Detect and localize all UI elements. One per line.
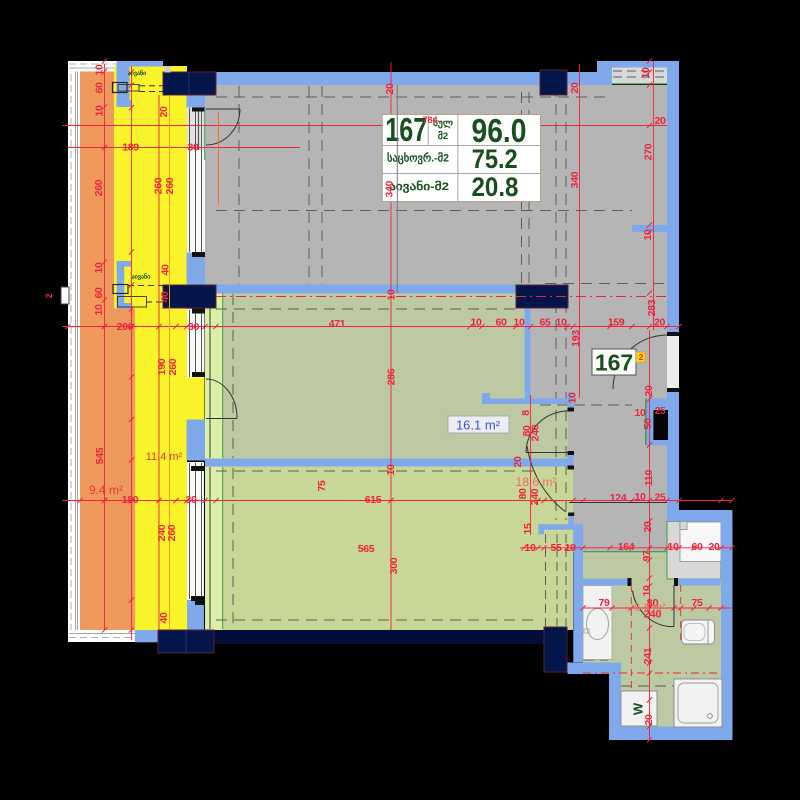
- svg-text:10: 10: [641, 585, 653, 597]
- svg-text:180: 180: [122, 494, 139, 506]
- svg-text:11.4 m²: 11.4 m²: [146, 451, 183, 463]
- svg-text:241: 241: [642, 647, 654, 664]
- svg-text:10: 10: [93, 304, 105, 316]
- svg-text:20: 20: [654, 115, 666, 127]
- svg-text:270: 270: [643, 143, 655, 160]
- svg-text:189: 189: [122, 142, 139, 154]
- svg-text:40: 40: [159, 291, 171, 303]
- svg-text:6.6 m²: 6.6 m²: [634, 602, 666, 614]
- svg-text:167: 167: [385, 111, 427, 148]
- svg-text:მ2: მ2: [438, 130, 448, 142]
- svg-text:565: 565: [358, 543, 375, 555]
- svg-text:30: 30: [188, 321, 200, 333]
- svg-text:25: 25: [654, 492, 666, 504]
- svg-text:60: 60: [93, 287, 105, 299]
- svg-text:18.6 m²: 18.6 m²: [516, 475, 557, 489]
- svg-text:10: 10: [470, 317, 482, 329]
- svg-text:75.2: 75.2: [472, 144, 518, 174]
- svg-text:260: 260: [166, 524, 178, 541]
- svg-text:10: 10: [667, 541, 679, 553]
- svg-text:30: 30: [187, 142, 199, 154]
- svg-text:აივანი: აივანი: [128, 69, 147, 77]
- svg-text:10: 10: [642, 229, 654, 241]
- svg-text:16.1 m²: 16.1 m²: [456, 418, 501, 433]
- svg-text:10: 10: [567, 392, 579, 404]
- svg-text:10: 10: [93, 262, 105, 274]
- svg-text:8: 8: [520, 410, 532, 416]
- svg-text:20: 20: [654, 317, 666, 329]
- svg-text:10: 10: [640, 67, 652, 79]
- svg-text:75: 75: [691, 597, 703, 609]
- svg-text:20: 20: [569, 82, 581, 94]
- svg-text:75: 75: [316, 480, 328, 492]
- svg-text:10: 10: [564, 542, 576, 554]
- svg-text:10: 10: [94, 105, 106, 117]
- svg-text:164: 164: [618, 541, 635, 553]
- svg-text:340: 340: [569, 171, 581, 188]
- svg-text:აივანი: აივანი: [132, 273, 151, 281]
- svg-text:20: 20: [158, 106, 170, 118]
- svg-text:240: 240: [529, 488, 541, 505]
- svg-text:260: 260: [164, 177, 176, 194]
- svg-text:471: 471: [329, 318, 346, 330]
- svg-text:124: 124: [610, 492, 627, 504]
- svg-text:50: 50: [642, 418, 654, 430]
- svg-text:545: 545: [94, 447, 106, 464]
- svg-text:286: 286: [386, 368, 398, 385]
- svg-text:20: 20: [643, 714, 655, 726]
- svg-text:260: 260: [153, 177, 165, 194]
- svg-text:30: 30: [185, 494, 197, 506]
- svg-text:10: 10: [555, 317, 567, 329]
- svg-text:2: 2: [639, 353, 644, 362]
- svg-text:20: 20: [708, 541, 720, 553]
- svg-text:20: 20: [512, 456, 524, 468]
- svg-text:65: 65: [539, 317, 551, 329]
- svg-text:97: 97: [641, 550, 653, 562]
- svg-text:615: 615: [365, 494, 382, 506]
- svg-text:15: 15: [522, 523, 534, 535]
- svg-text:260: 260: [167, 358, 179, 375]
- svg-text:20: 20: [643, 385, 655, 397]
- svg-text:საცხოვრ.-მ2: საცხოვრ.-მ2: [387, 152, 449, 165]
- svg-text:20: 20: [384, 83, 396, 95]
- svg-text:25: 25: [655, 406, 666, 417]
- svg-text:200: 200: [117, 321, 134, 333]
- svg-text:2: 2: [44, 293, 54, 298]
- svg-text:110: 110: [643, 470, 655, 486]
- svg-text:55: 55: [550, 542, 562, 554]
- svg-text:10: 10: [524, 542, 536, 554]
- svg-text:აივანი-მ2: აივანი-მ2: [389, 180, 449, 193]
- svg-text:10: 10: [513, 317, 525, 329]
- svg-text:193: 193: [570, 330, 582, 347]
- svg-text:40: 40: [158, 612, 170, 624]
- svg-text:340: 340: [385, 180, 396, 197]
- svg-text:10: 10: [634, 407, 646, 419]
- svg-text:60: 60: [94, 82, 106, 94]
- svg-text:784: 784: [422, 115, 437, 125]
- svg-text:9.4 m²: 9.4 m²: [89, 483, 123, 497]
- svg-text:20.8: 20.8: [472, 172, 519, 202]
- svg-text:40: 40: [160, 264, 172, 276]
- svg-text:159: 159: [608, 317, 625, 329]
- svg-text:300: 300: [388, 557, 400, 574]
- svg-text:20: 20: [642, 521, 654, 533]
- svg-text:283: 283: [646, 299, 658, 316]
- svg-text:10: 10: [386, 289, 398, 301]
- svg-text:W: W: [631, 702, 646, 715]
- svg-text:167: 167: [595, 350, 633, 376]
- svg-text:260: 260: [93, 179, 105, 196]
- svg-text:10: 10: [385, 464, 397, 476]
- svg-text:10: 10: [94, 64, 106, 76]
- svg-text:79: 79: [598, 597, 610, 609]
- svg-text:240: 240: [530, 424, 542, 441]
- svg-text:10: 10: [634, 491, 646, 503]
- svg-text:60: 60: [691, 541, 703, 553]
- svg-text:80: 80: [517, 488, 529, 500]
- svg-text:60: 60: [495, 317, 507, 329]
